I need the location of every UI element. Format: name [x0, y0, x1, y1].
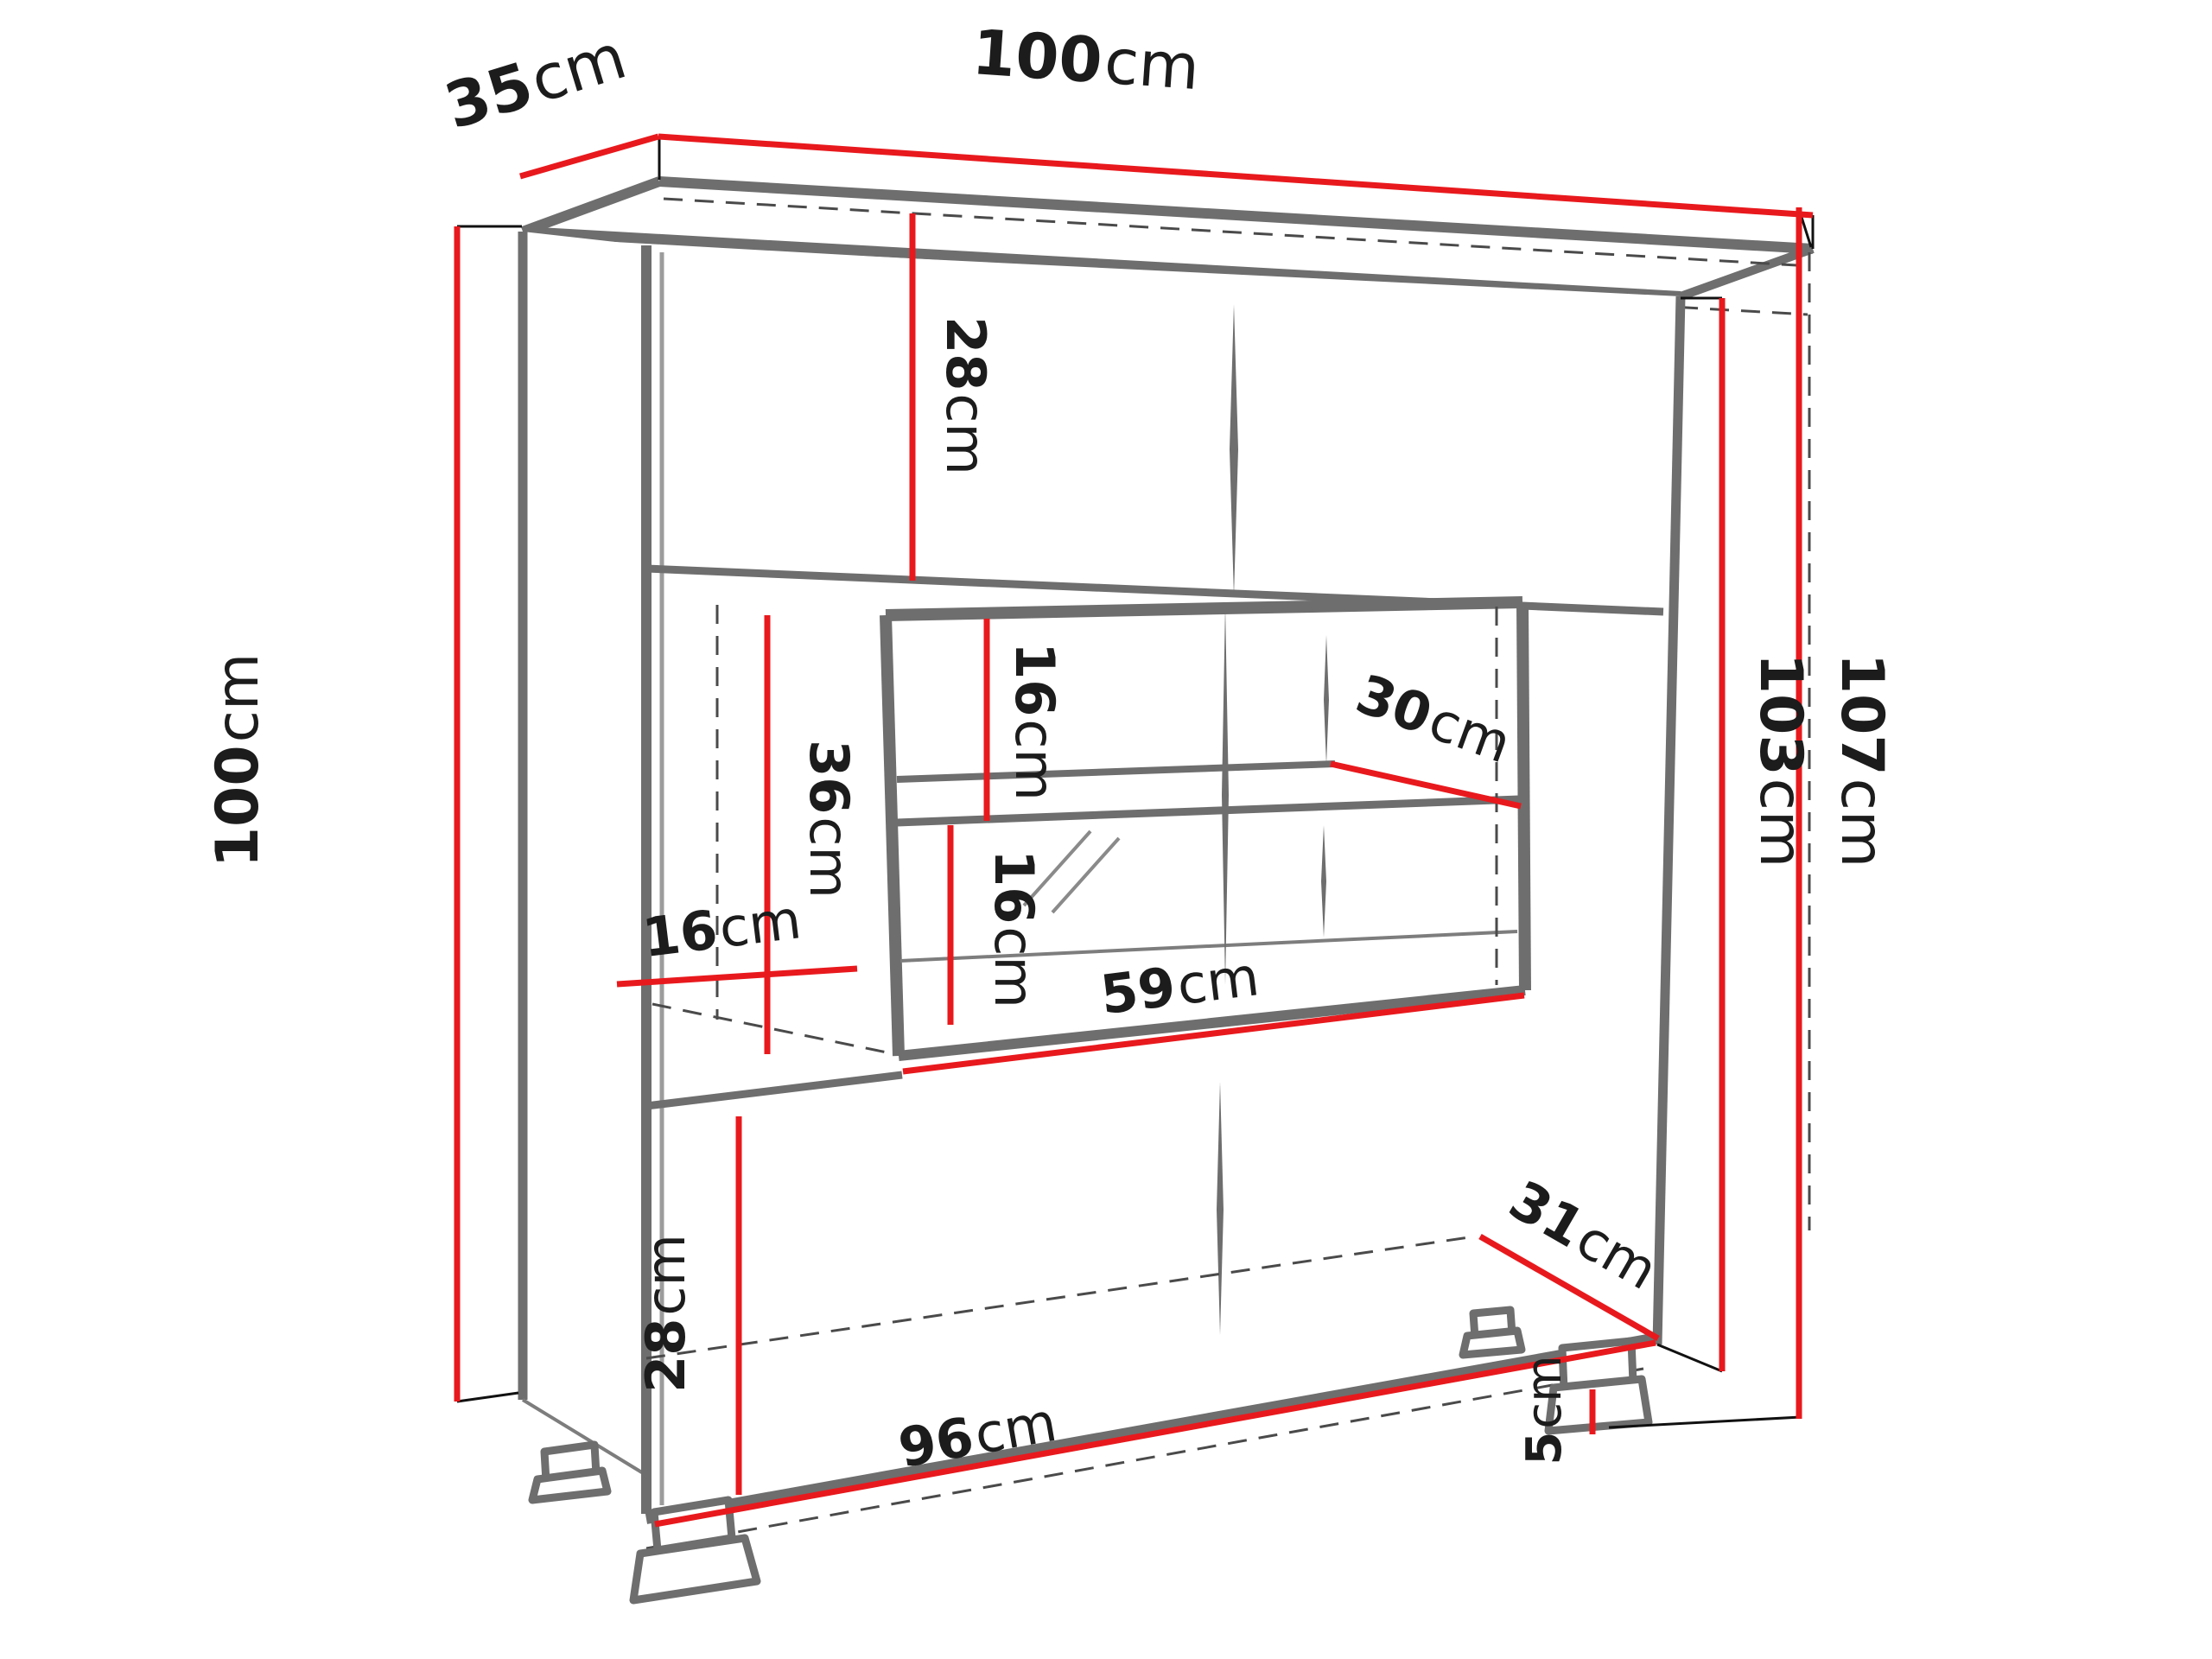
cabinet-left-side [523, 232, 646, 1514]
dim-label-height-carcass: 103cm [1746, 653, 1815, 868]
dim-label-vitrine-lower-gap: 16cm [982, 849, 1046, 1008]
dim-label-middle-section: 36cm [798, 740, 861, 899]
dim-label-feet-height: 5cm [1516, 1355, 1573, 1465]
dim-label-width-top: 100cm [970, 16, 1202, 104]
furniture-dimension-diagram: 35cm 100cm 100cm 103cm 107cm 28cm 16cm 3… [0, 0, 2212, 1659]
dim-label-top-section: 28cm [934, 316, 997, 475]
dim-line-depth-top [520, 137, 658, 176]
cabinet-diagram: 35cm 100cm 100cm 103cm 107cm 28cm 16cm 3… [0, 0, 2212, 1659]
dim-label-depth-top: 35cm [437, 20, 634, 143]
dim-label-bottom-section: 28cm [634, 1234, 697, 1393]
dim-label-vitrine-upper-gap: 16cm [1003, 642, 1066, 801]
dim-label-height-left: 100cm [204, 653, 272, 868]
dim-label-height-total: 107cm [1827, 653, 1896, 868]
